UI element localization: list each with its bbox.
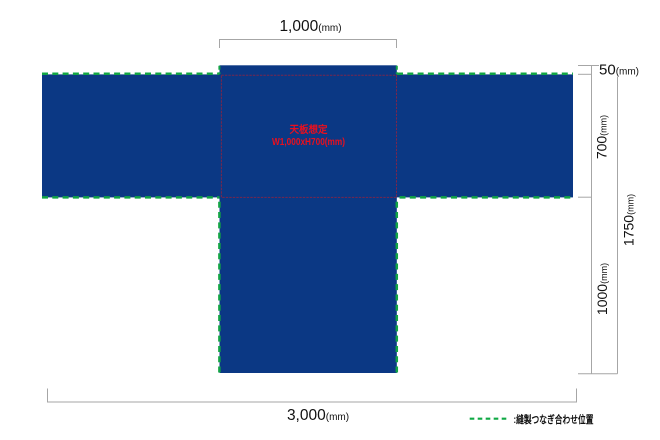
svg-text:1000(mm): 1000(mm) <box>594 263 610 315</box>
svg-text:W1,000xH700(mm): W1,000xH700(mm) <box>272 137 345 148</box>
svg-text:天板想定: 天板想定 <box>290 123 328 136</box>
svg-text:1750(mm): 1750(mm) <box>621 194 637 246</box>
svg-text:1,000(mm): 1,000(mm) <box>279 18 341 35</box>
svg-text:700(mm): 700(mm) <box>594 115 610 159</box>
svg-text::縫製つなぎ合わせ位置: :縫製つなぎ合わせ位置 <box>514 413 594 426</box>
svg-text:3,000(mm): 3,000(mm) <box>287 407 349 424</box>
svg-text:50(mm): 50(mm) <box>599 62 639 79</box>
